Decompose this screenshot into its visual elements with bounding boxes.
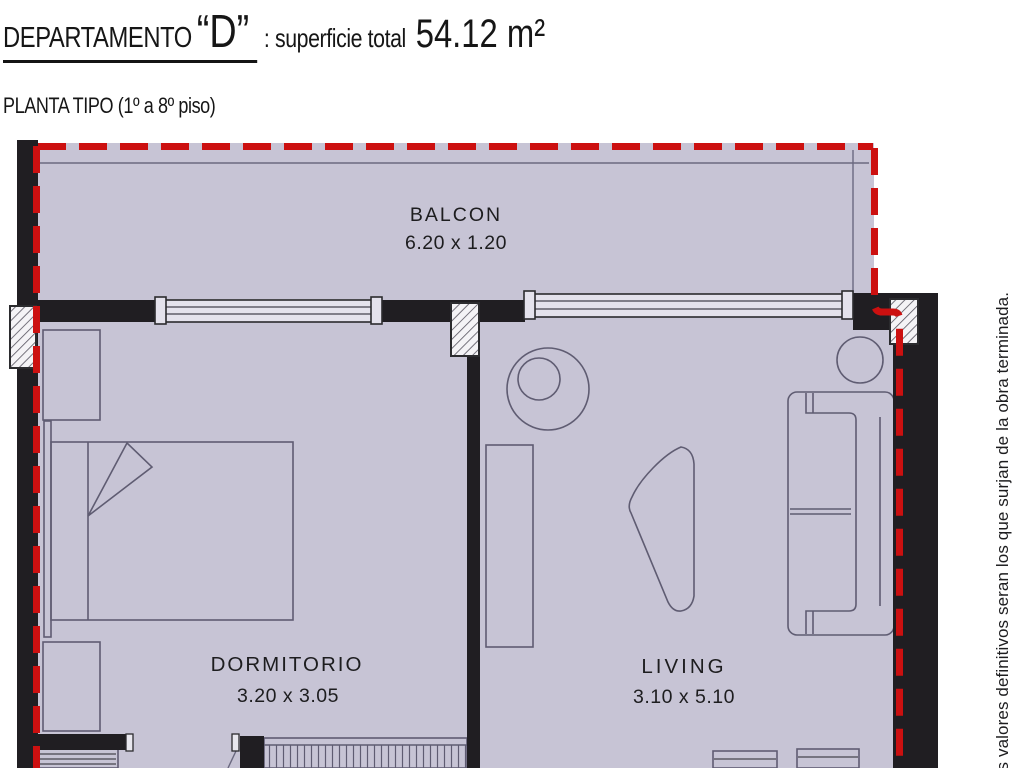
column-middle	[451, 303, 479, 356]
column-right	[890, 299, 918, 344]
interior-divider-wall	[467, 356, 480, 768]
bedroom-window	[155, 297, 382, 324]
living-label: LIVING	[641, 655, 726, 678]
rooms-floor	[36, 300, 893, 768]
floor-plan-drawing: BALCON 6.20 x 1.20 DORMITORIO 3.20 x 3.0…	[0, 0, 1024, 768]
floor-plan-page: DEPARTAMENTO “D” : superficie total 54.1…	[0, 0, 1024, 768]
living-dimensions: 3.10 x 5.10	[633, 686, 735, 708]
door-frame-left	[126, 734, 133, 751]
bedroom-dimensions: 3.20 x 3.05	[237, 685, 339, 707]
disclaimer-side-note: os valores definitivos seran los que sur…	[993, 292, 1012, 768]
facade-wall-left	[38, 300, 160, 322]
door-frame-right	[232, 734, 239, 751]
living-window	[524, 291, 853, 319]
balcony-dimensions: 6.20 x 1.20	[405, 232, 507, 254]
bottom-wall-left	[38, 734, 127, 750]
bottom-wall-stub	[240, 736, 264, 768]
balcony-label: BALCON	[410, 204, 502, 226]
bedroom-label: DORMITORIO	[211, 653, 364, 676]
column-left	[10, 306, 36, 368]
